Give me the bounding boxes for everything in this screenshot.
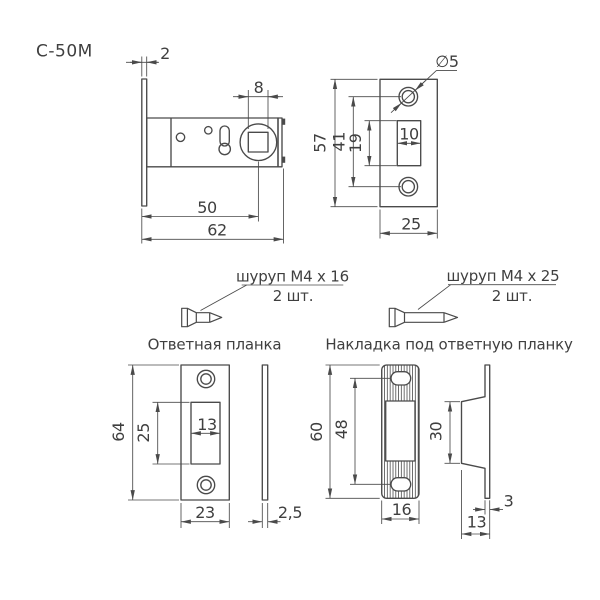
screw-small: шуруп М4 х 16 2 шт.	[182, 268, 349, 327]
dim-overlay-height-label: 60	[307, 422, 326, 442]
strike-plate-title: Ответная планка	[148, 336, 282, 354]
overlay-hole-bottom	[391, 478, 411, 491]
dim-strike-slot-width-label: 13	[197, 415, 217, 434]
model-label: С-50М	[36, 42, 93, 62]
dim-overlay-thickness: 3	[473, 492, 513, 515]
dim-strike-height-label: 64	[109, 422, 128, 442]
dim-strike-thickness-label: 2,5	[278, 503, 302, 522]
overlay-hole-top	[391, 372, 411, 385]
drawing-canvas: С-50М 2 8	[0, 0, 600, 600]
dim-hole-diameter: ∅5	[391, 52, 459, 113]
dim-faceplate-height-label: 57	[311, 133, 330, 153]
dim-faceplate-slot-height-label: 19	[346, 133, 365, 153]
strike-plate-side	[262, 365, 267, 500]
dim-faceplate-slot-width: 10	[397, 125, 420, 144]
dim-strike-slot-height-label: 25	[134, 423, 153, 443]
latch-tab-bottom	[282, 157, 285, 163]
dim-overlay-thickness-label: 3	[504, 492, 514, 511]
dim-hole-diameter-label: ∅5	[435, 52, 458, 71]
screw-large: шуруп М4 х 25 2 шт.	[389, 267, 559, 327]
screw-large-icon	[389, 308, 457, 326]
dim-faceplate-thickness-label: 2	[160, 44, 170, 63]
dim-faceplate-slot-width-label: 10	[399, 125, 419, 144]
latch-end-strip	[278, 118, 282, 167]
dim-backset-label: 50	[197, 198, 217, 217]
dim-overlay-recess: 30	[427, 402, 461, 464]
dim-square-hole-label: 8	[254, 78, 264, 97]
dim-overlay-depth-label: 13	[467, 513, 487, 532]
strike-hole-bottom	[197, 476, 214, 493]
latch-side-view: 2 8 50 62	[126, 44, 285, 244]
dim-overlay-recess-label: 30	[427, 422, 446, 442]
overlay-plate-view: Накладка под ответную планку 60 48 16	[307, 336, 573, 540]
overlay-side-profile	[462, 365, 490, 498]
latch-spindle-square	[248, 132, 268, 152]
dim-strike-width: 23	[181, 503, 229, 528]
overlay-window	[386, 401, 415, 461]
strike-plate-view: Ответная планка 13 64 25 23	[109, 336, 302, 529]
dim-strike-width-label: 23	[195, 503, 215, 522]
latch-faceplate-edge	[142, 79, 147, 206]
dim-strike-thickness: 2,5	[248, 503, 302, 528]
latch-tab-top	[282, 119, 285, 125]
dim-faceplate-width-label: 25	[401, 215, 421, 234]
screw-small-icon	[182, 308, 222, 326]
dim-strike-slot-width: 13	[191, 415, 220, 434]
dim-faceplate-width: 25	[380, 210, 437, 239]
latch-spindle-circle	[240, 124, 277, 161]
latch-hole-small-2	[205, 127, 212, 134]
dim-square-hole: 8	[233, 78, 283, 129]
technical-drawing-svg: С-50М 2 8	[0, 0, 600, 600]
screw-large-label: шуруп М4 х 25	[447, 267, 560, 285]
faceplate-front-view: ∅5 57 41 19 10 25	[311, 52, 459, 239]
dim-faceplate-thickness: 2	[126, 44, 170, 77]
strike-hole-top	[197, 370, 214, 387]
latch-hole-small-1	[176, 133, 184, 141]
dim-total-length-label: 62	[207, 221, 227, 240]
dim-faceplate-hole-spacing: 41	[330, 97, 402, 187]
screw-large-qty: 2 шт.	[492, 287, 533, 305]
overlay-plate-title: Накладка под ответную планку	[325, 336, 573, 354]
screw-small-label: шуруп М4 х 16	[236, 268, 349, 286]
dim-overlay-width: 16	[382, 500, 419, 524]
latch-body	[147, 118, 278, 167]
dim-overlay-width-label: 16	[392, 500, 412, 519]
dim-backset: 50	[142, 162, 259, 244]
screw-small-qty: 2 шт.	[273, 287, 314, 305]
dim-overlay-hole-spacing-label: 48	[332, 420, 351, 440]
